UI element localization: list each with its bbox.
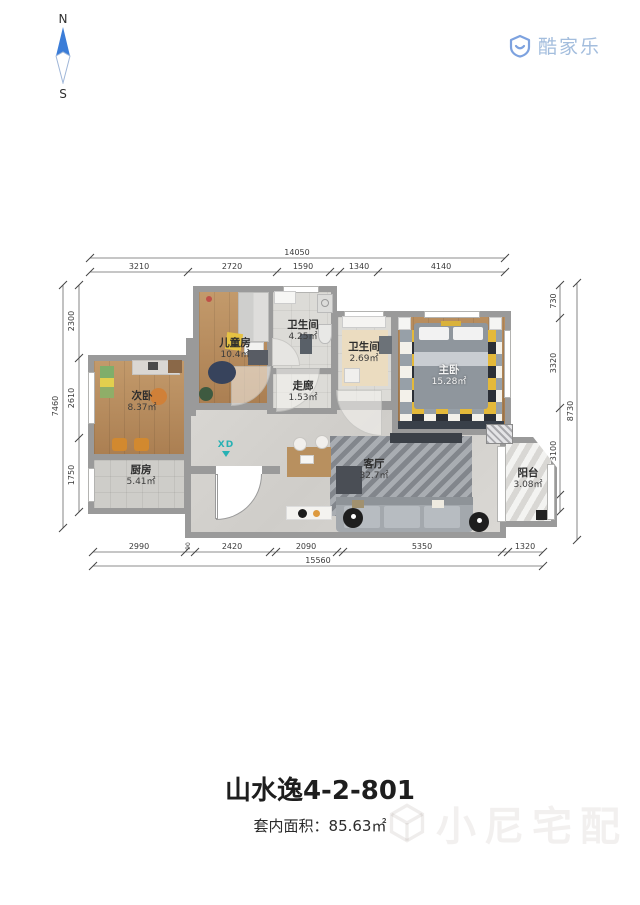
- dim-top-seg: 4140: [431, 262, 451, 271]
- stool-orange: [112, 438, 127, 451]
- entry-door-opening: [216, 466, 262, 474]
- floorplan-page: N S 酷家乐: [0, 0, 640, 905]
- tv-bench: [286, 506, 332, 520]
- throw-pillow: [352, 500, 364, 508]
- entry-door-leaf: [215, 474, 218, 519]
- window-kitchen: [88, 468, 95, 502]
- dim-bottom-seg: 5350: [412, 542, 432, 551]
- window-secondary: [88, 372, 95, 424]
- dim-bottom-seg: 2090: [296, 542, 316, 551]
- toy: [206, 296, 212, 302]
- beanbag: [208, 361, 236, 384]
- ac-unit: [486, 424, 513, 444]
- shelf-green: [100, 366, 114, 378]
- bath2-fixture: [379, 336, 392, 354]
- decor-orange: [313, 510, 320, 517]
- dim-top-seg: 2720: [222, 262, 242, 271]
- nightstand: [398, 317, 411, 330]
- stool-orange: [134, 438, 149, 451]
- dim-right-seg: 3320: [549, 353, 558, 373]
- sofa-cushion: [384, 506, 420, 528]
- dim-top-seg: 1340: [349, 262, 369, 271]
- room-label-living: 客厅 32.7㎡: [359, 458, 388, 482]
- dim-top-total: 14050: [284, 248, 309, 257]
- entry-marker-label: XD: [210, 440, 242, 450]
- room-label-master: 主卧 15.28㎡: [432, 364, 467, 388]
- wall-patch: [186, 338, 196, 416]
- throw-pillow: [432, 500, 444, 508]
- nightstand: [489, 317, 502, 330]
- dim-bottom-seg: 2990: [129, 542, 149, 551]
- dim-bottom-total: 15560: [305, 556, 330, 565]
- window-balcony: [547, 464, 555, 520]
- room-label-children: 儿童房 10.4㎡: [219, 337, 251, 361]
- room-label-balcony: 阳台 3.08㎡: [513, 467, 542, 491]
- entry-marker: XD: [210, 440, 242, 457]
- dim-bottom-seg: 90: [185, 542, 192, 550]
- tv-console: [390, 433, 462, 443]
- pillow: [419, 327, 449, 340]
- room-label-bathroom-2: 卫生间 2.69㎡: [348, 341, 380, 365]
- vanity: [342, 316, 386, 328]
- window-master-right: [504, 330, 511, 398]
- room-label-secondary: 次卧 8.37㎡: [127, 390, 156, 414]
- entry-arrow-icon: [222, 451, 230, 457]
- dim-bottom-seg: 2420: [222, 542, 242, 551]
- dim-bottom-seg: 1320: [515, 542, 535, 551]
- toilet: [318, 324, 332, 344]
- laptop: [300, 455, 314, 464]
- sofa-cushion: [424, 506, 460, 528]
- shelf-green: [100, 387, 114, 398]
- side-table-dot: [477, 518, 482, 523]
- dim-left-seg: 2300: [67, 311, 76, 331]
- room-label-bathroom-1: 卫生间 4.25㎡: [287, 319, 319, 343]
- area-value: 85.63㎡: [329, 817, 387, 835]
- headboard-accent: [441, 321, 461, 326]
- stool-brown: [168, 360, 182, 373]
- toilet: [344, 368, 360, 383]
- shelf-yellow: [100, 378, 114, 387]
- dim-right-seg: 730: [549, 293, 558, 308]
- plan-title: 山水逸4-2-801: [0, 770, 640, 807]
- speaker: [298, 509, 307, 518]
- side-table-dot: [351, 514, 356, 519]
- plant: [199, 387, 213, 401]
- dim-left-seg: 1750: [67, 465, 76, 485]
- desk-chair: [315, 435, 329, 449]
- window-master-top: [424, 311, 480, 318]
- room-label-kitchen: 厨房 5.41㎡: [126, 464, 155, 488]
- kid-desk: [248, 350, 268, 365]
- room-label-corridor: 走廊 1.53㎡: [288, 380, 317, 404]
- dim-right-total: 8730: [566, 401, 575, 421]
- sliding-door-balcony: [497, 446, 506, 522]
- area-label: 套内面积：: [254, 817, 329, 835]
- dim-right-seg: 3100: [549, 441, 558, 461]
- washing-machine-door: [321, 299, 329, 307]
- dim-top-seg: 3210: [129, 262, 149, 271]
- plan-area-total: 套内面积：85.63㎡: [0, 815, 640, 836]
- dim-left-total: 7460: [51, 396, 60, 416]
- desk-chair: [293, 437, 307, 451]
- pillow: [453, 327, 483, 340]
- dim-top-seg: 1590: [293, 262, 313, 271]
- living-cabinet: [336, 466, 362, 494]
- dim-left-seg: 2610: [67, 388, 76, 408]
- desk-item: [148, 362, 158, 370]
- sink: [274, 291, 296, 304]
